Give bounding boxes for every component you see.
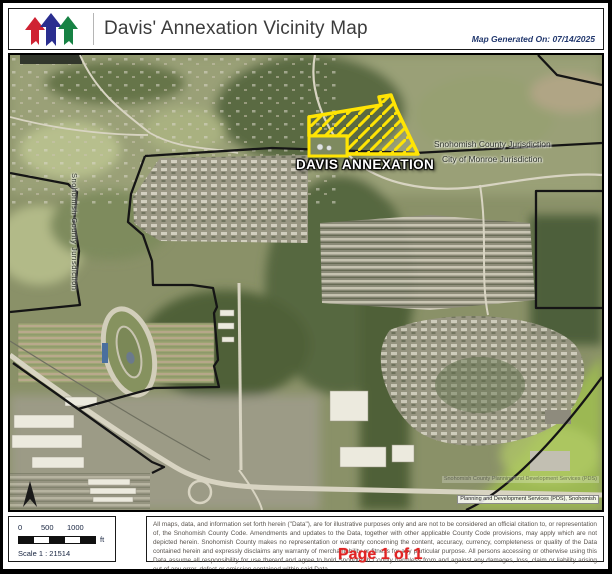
logo-arrow-green-icon [58, 16, 78, 45]
scale-tick-0: 0 [18, 523, 22, 532]
scale-tick-500: 500 [41, 523, 54, 532]
scale-ratio: Scale 1 : 21514 [18, 549, 70, 558]
residential-rows [320, 215, 535, 310]
header-divider [93, 13, 94, 45]
map-attribution: Snohomish County Planning and Developmen… [442, 466, 599, 506]
scale-tick-1000: 1000 [67, 523, 84, 532]
scale-box: 0 500 1000 ft Scale 1 : 21514 [8, 516, 116, 562]
page-title: Davis' Annexation Vicinity Map [104, 18, 368, 40]
aerial-imagery [10, 55, 602, 510]
scale-unit: ft [100, 535, 104, 544]
map-generated-date: Map Generated On: 07/14/2025 [472, 34, 595, 44]
map-canvas: DAVIS ANNEXATION Snohomish County Jurisd… [8, 53, 604, 512]
attribution-line-1: Snohomish County Planning and Developmen… [442, 476, 599, 483]
map-document-page: Davis' Annexation Vicinity Map Map Gener… [0, 0, 612, 574]
logo-arrow-red-icon [25, 17, 45, 45]
snohomish-county-logo-icon [23, 11, 85, 47]
header: Davis' Annexation Vicinity Map Map Gener… [8, 8, 604, 50]
page-number: Page 1 of 1 [338, 546, 422, 564]
subdivision-center [133, 155, 308, 243]
attribution-line-2: Planning and Development Services (PDS),… [457, 495, 599, 504]
scale-bar [18, 536, 96, 544]
